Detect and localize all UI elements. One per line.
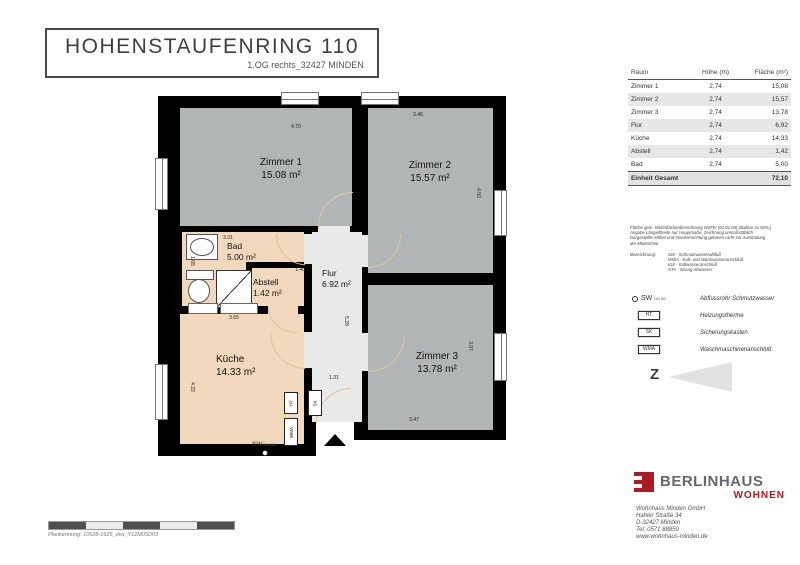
dim-label: 5.28	[343, 309, 349, 333]
scale-segment	[160, 522, 197, 529]
dim-label: 4.70	[284, 124, 308, 130]
legend-symbol-text: SW	[641, 295, 652, 302]
cell-raum: Zimmer 1	[628, 80, 691, 93]
cell-hoehe: 2,74	[691, 132, 739, 145]
table-row: Küche 2,74 14,33	[628, 132, 791, 145]
scale-segment	[49, 522, 86, 529]
door-opening	[304, 332, 312, 368]
wma-label: WMA	[289, 427, 294, 438]
note-line: der Mieteinheit	[630, 241, 790, 246]
table-header-row: Raum Höhe (m) Fläche (m²)	[628, 66, 791, 80]
cell-raum: Abstell	[628, 145, 691, 158]
brand-name: BERLINHAUS	[660, 473, 790, 490]
room-name: Zimmer 1	[221, 157, 341, 170]
cell-hoehe: 2,74	[691, 80, 739, 93]
legend-item: SW DN 50 Abflussrohr Schmutzwasser	[630, 290, 792, 307]
room-area: 5.00 m²	[227, 252, 256, 263]
total-value: 72,10	[740, 172, 791, 185]
legend-item: WMA Waschmaschinenanschluß	[630, 341, 792, 358]
room-label-zimmer-1: Zimmer 1 15.08 m²	[221, 157, 341, 182]
kitchen-counter-icon	[188, 303, 218, 314]
dim-label: 3.47	[402, 417, 426, 423]
scale-segment	[86, 522, 123, 529]
address-line: Hahler Straße 34	[636, 513, 786, 520]
window-symbol	[361, 92, 399, 105]
room-area: 6.92 m²	[322, 279, 351, 290]
address-line: Tel: 0571 88850	[636, 527, 786, 534]
dim-label: 1.31	[322, 375, 346, 381]
room-name: Abstell	[253, 277, 282, 288]
table-row: Flur 2,74 6,92	[628, 119, 791, 132]
room-label-zimmer-2: Zimmer 2 15.57 m²	[370, 160, 490, 185]
cell-hoehe: 2,74	[691, 158, 739, 171]
col-header-flaeche: Fläche (m²)	[740, 66, 791, 79]
room-area: 13.78 m²	[377, 364, 497, 377]
cell-flaeche: 15,08	[740, 80, 791, 93]
cell-flaeche: 6,92	[740, 119, 791, 132]
bezeichnung-item: STA - Strang Abwasser	[668, 267, 743, 272]
ht-symbol: HT	[630, 311, 692, 320]
bezeichnung-label: Bezeichnung:	[630, 252, 668, 273]
sk-symbol: SK	[630, 328, 692, 337]
sk-box-icon: SK	[308, 390, 322, 416]
cell-raum: Küche	[628, 132, 691, 145]
cell-hoehe: 2,74	[691, 145, 739, 158]
dim-label: 1.65	[189, 249, 195, 273]
sk-label: SK	[312, 400, 317, 406]
room-name: Küche	[216, 354, 255, 367]
window-symbol	[155, 364, 168, 420]
room-table: Raum Höhe (m) Fläche (m²) Zimmer 1 2,74 …	[628, 66, 791, 186]
scale-segment	[123, 522, 160, 529]
sw-drain-label: SW DN 50	[252, 441, 276, 448]
room-label-kueche: Küche 14.33 m²	[216, 354, 255, 379]
dim-label: 4.22	[189, 375, 195, 399]
dim-label: 3.46	[406, 112, 430, 118]
scale-segment	[197, 522, 234, 529]
table-footer-row: Einheit Gesamt 72,10	[628, 171, 791, 186]
sw-drain-circle-icon	[262, 450, 268, 456]
col-header-raum: Raum	[628, 66, 691, 79]
room-area: 1.42 m²	[253, 288, 282, 299]
wma-box-icon: WMA	[284, 418, 298, 446]
symbol-legend: SW DN 50 Abflussrohr Schmutzwasser HT He…	[630, 290, 792, 358]
entrance-arrow-icon	[324, 434, 346, 446]
room-label-zimmer-3: Zimmer 3 13.78 m²	[377, 351, 497, 376]
logo-cut	[634, 484, 642, 488]
room-name: Bad	[227, 241, 256, 252]
cell-raum: Flur	[628, 119, 691, 132]
plan-sheet: HOHENSTAUFENRING 110 1.OG rechts_32427 M…	[0, 0, 800, 565]
cell-hoehe: 2,74	[691, 93, 739, 106]
page-title: HOHENSTAUFENRING 110	[47, 35, 377, 59]
ht-box-icon: HT	[638, 311, 660, 320]
brand-division: WOHNEN	[660, 490, 785, 501]
cell-hoehe: 2,74	[691, 119, 739, 132]
window-symbol	[281, 92, 319, 105]
total-label: Einheit Gesamt	[628, 172, 691, 185]
drain-circle-icon	[632, 296, 638, 302]
legend-label: Abflussrohr Schmutzwasser	[692, 296, 774, 302]
sw-text: SW	[252, 441, 262, 448]
window-symbol	[494, 190, 507, 236]
cell-raum: Zimmer 2	[628, 93, 691, 106]
room-name: Zimmer 2	[370, 160, 490, 173]
notes-block: Fläche gem. Wohnflächenberechnung WoFlV …	[630, 225, 790, 273]
room-label-abstell: Abstell 1.42 m²	[253, 277, 282, 298]
room-name: Flur	[322, 268, 351, 279]
berlinhaus-logo-icon	[634, 472, 654, 492]
address-line: D-32427 Minden	[636, 520, 786, 527]
sw-size-text: DN 50	[264, 442, 275, 447]
cell-raum: Bad	[628, 158, 691, 171]
bezeichnung-items: SW - Schmutzwasserabfluß WWA - Kalt- und…	[668, 252, 743, 273]
address-block: Wohnhaus Minden GmbH Hahler Straße 34 D-…	[636, 506, 786, 541]
table-row: Bad 2,74 5,00	[628, 158, 791, 171]
col-header-hoehe: Höhe (m)	[691, 66, 739, 79]
ht-label: HT	[289, 400, 294, 406]
room-name: Zimmer 3	[377, 351, 497, 364]
legend-item: SK Sicherungskasten	[630, 324, 792, 341]
door-opening	[304, 234, 312, 264]
cell-raum: Zimmer 3	[628, 106, 691, 119]
table-row: Abstell 2,74 1,42	[628, 145, 791, 158]
legend-label: Heizungstherme	[692, 313, 744, 319]
room-label-bad: Bad 5.00 m²	[227, 241, 256, 262]
drain-symbol: SW DN 50	[630, 295, 692, 302]
cell-flaeche: 13,78	[740, 106, 791, 119]
table-row: Zimmer 1 2,74 15,08	[628, 80, 791, 93]
scale-bar	[48, 521, 235, 530]
room-area: 14.33 m²	[216, 367, 255, 380]
address-line: www.wohnhaus-minden.de	[636, 534, 786, 541]
logo-cut	[634, 476, 642, 480]
title-box: HOHENSTAUFENRING 110 1.OG rechts_32427 M…	[45, 28, 379, 78]
cell-flaeche: 5,00	[740, 158, 791, 171]
sk-box-icon: SK	[638, 328, 660, 337]
wma-box-icon: WMA	[638, 345, 660, 354]
address-line: Wohnhaus Minden GmbH	[636, 506, 786, 513]
total-spacer	[691, 172, 739, 185]
north-arrow-icon	[668, 362, 732, 392]
cell-flaeche: 14,33	[740, 132, 791, 145]
plan-id: Plankennung: 10528-1625_dva_Y12M05D03	[48, 532, 158, 538]
window-symbol	[155, 158, 168, 210]
table-row: Zimmer 2 2,74 15,57	[628, 93, 791, 106]
table-row: Zimmer 3 2,74 13,78	[628, 106, 791, 119]
wma-symbol: WMA	[630, 345, 692, 354]
bezeichnung-block: Bezeichnung: SW - Schmutzwasserabfluß WW…	[630, 252, 790, 273]
legend-item: HT Heizungstherme	[630, 307, 792, 324]
legend-symbol-suffix: DN 50	[654, 296, 665, 301]
legend-label: Waschmaschinenanschluß	[692, 347, 772, 353]
cell-flaeche: 15,57	[740, 93, 791, 106]
kitchen-counter-icon	[220, 303, 258, 314]
room-area: 15.08 m²	[221, 170, 341, 183]
room-label-flur: Flur 6.92 m²	[322, 268, 351, 289]
ht-box-icon: HT	[284, 392, 298, 414]
dim-label: 3.65	[222, 315, 246, 321]
page-subtitle: 1.OG rechts_32427 MINDEN	[47, 60, 364, 70]
room-area: 15.57 m²	[370, 173, 490, 186]
dim-label: 1.46	[288, 267, 312, 273]
legend-label: Sicherungskasten	[692, 330, 748, 336]
cell-flaeche: 1,42	[740, 145, 791, 158]
north-arrow-letter: Z	[650, 366, 659, 383]
cell-hoehe: 2,74	[691, 106, 739, 119]
toilet-icon	[188, 279, 210, 303]
